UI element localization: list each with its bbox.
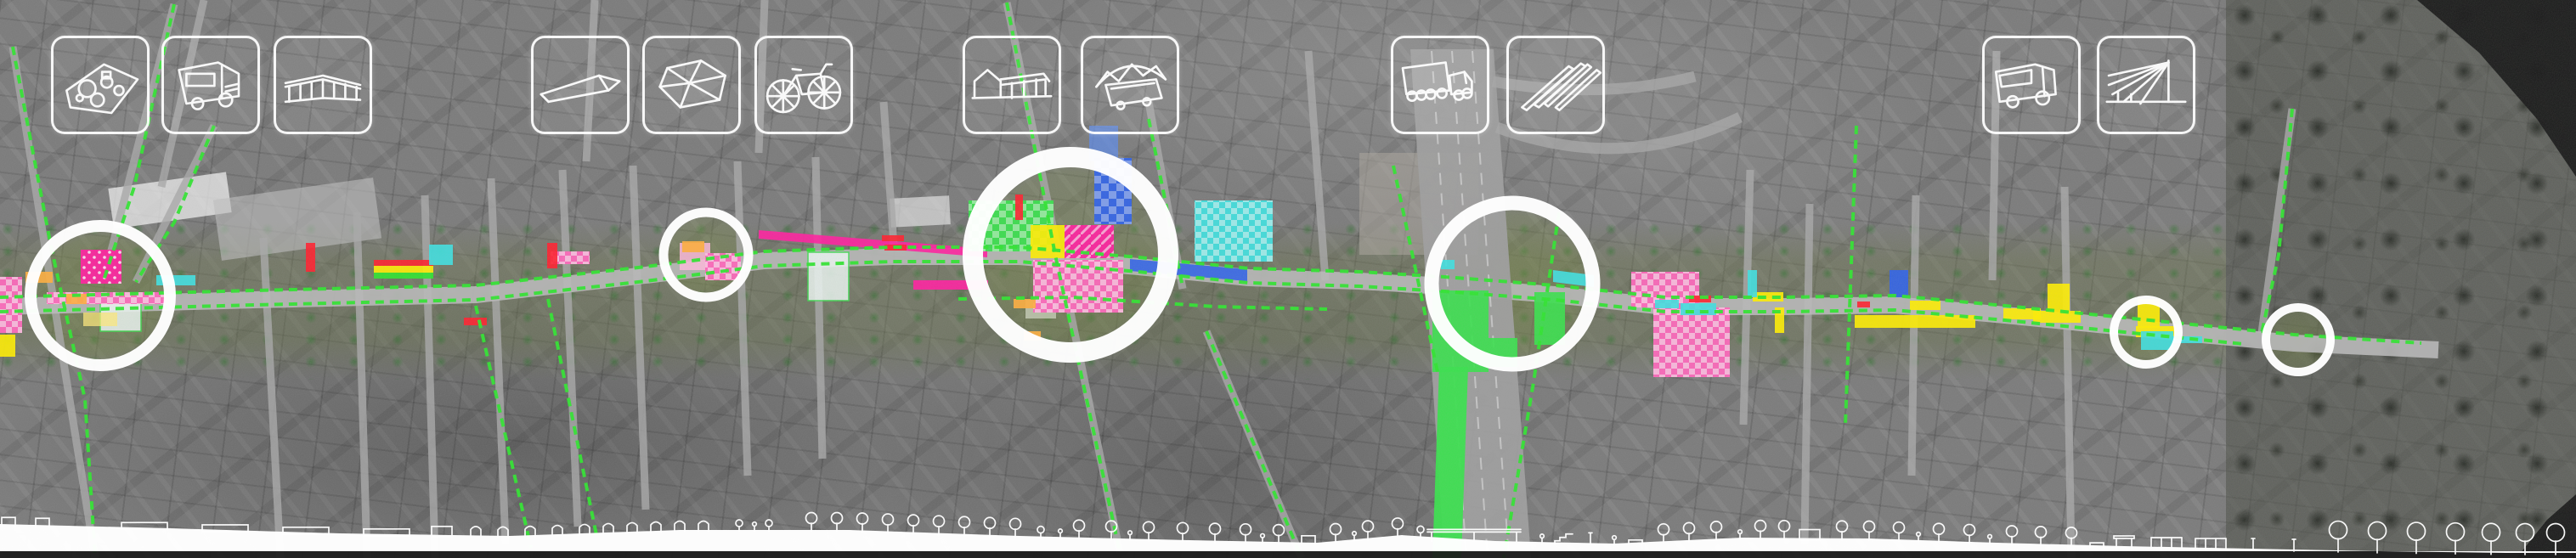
legend-box-bus-gridshell [1081, 36, 1179, 134]
light-tubes-icon [1509, 38, 1602, 132]
freight-truck-icon [1393, 38, 1487, 132]
market-pavilion-icon [276, 38, 370, 132]
legend-box-street-perspective [2097, 36, 2195, 134]
canopy-house-icon [965, 38, 1059, 132]
legend-box-light-tubes [1506, 36, 1605, 134]
faceted-canopy-icon [645, 38, 738, 132]
intervention-legend-row [0, 0, 2576, 558]
plaza-plan-icon [54, 38, 147, 132]
food-truck-2-icon [1985, 38, 2078, 132]
map-canvas[interactable] [0, 0, 2576, 558]
legend-box-market-pavilion [274, 36, 372, 134]
food-truck-icon [164, 38, 257, 132]
bicycle-icon [757, 38, 850, 132]
wedge-ramp-icon [534, 38, 627, 132]
legend-box-food-truck [161, 36, 260, 134]
bus-gridshell-icon [1083, 38, 1177, 132]
legend-box-plaza-plan [51, 36, 150, 134]
legend-box-food-truck-2 [1982, 36, 2081, 134]
legend-box-faceted-canopy [642, 36, 741, 134]
legend-box-freight-truck [1391, 36, 1489, 134]
street-perspective-icon [2099, 38, 2193, 132]
legend-box-wedge-ramp [531, 36, 630, 134]
legend-box-bicycle [754, 36, 853, 134]
legend-box-canopy-house [963, 36, 1061, 134]
